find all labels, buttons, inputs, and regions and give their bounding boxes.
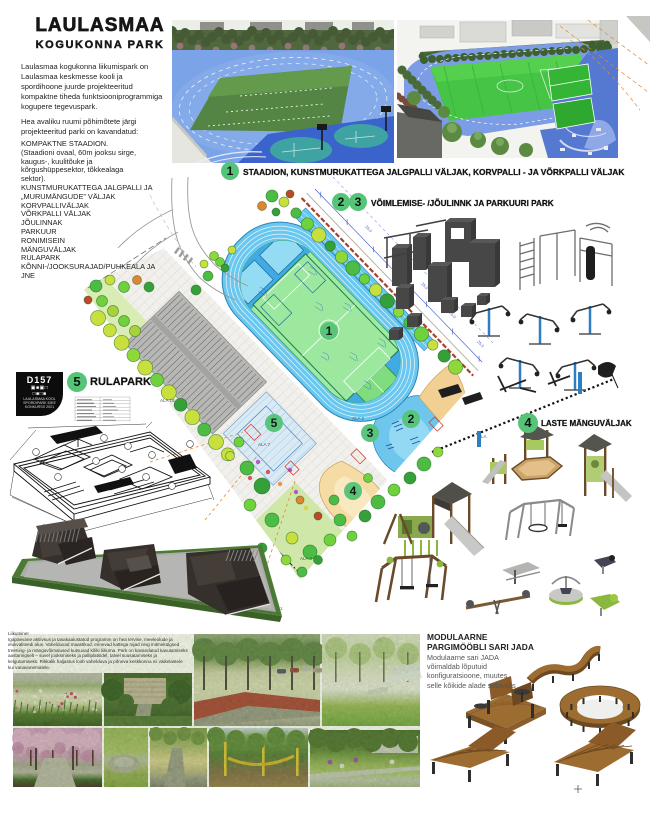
svg-text:25.0: 25.0 <box>476 339 486 349</box>
svg-text:ALA 3: ALA 3 <box>300 556 313 561</box>
svg-text:ALA 18: ALA 18 <box>160 398 175 403</box>
svg-text:25.0: 25.0 <box>364 224 374 234</box>
svg-text:ALA 2: ALA 2 <box>352 416 365 421</box>
svg-text:ALA 7: ALA 7 <box>258 442 271 447</box>
